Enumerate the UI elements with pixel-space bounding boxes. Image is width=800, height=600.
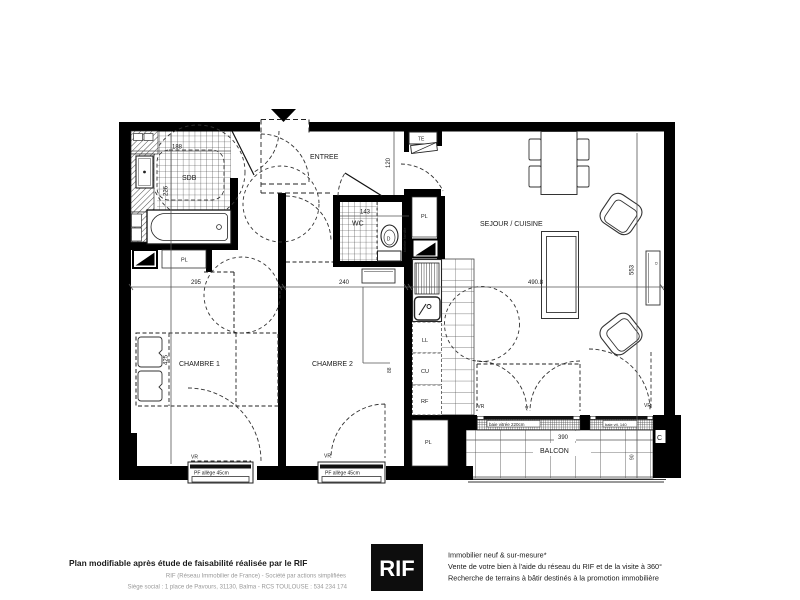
- svg-text:Vente de votre bien à l'aide d: Vente de votre bien à l'aide du réseau d…: [448, 562, 662, 571]
- svg-text:SDB: SDB: [182, 175, 197, 182]
- svg-text:LL: LL: [422, 338, 428, 344]
- svg-text:188: 188: [172, 145, 183, 151]
- svg-text:390: 390: [558, 435, 569, 441]
- svg-text:D: D: [654, 262, 659, 265]
- svg-text:490.8: 490.8: [528, 280, 544, 286]
- svg-text:D: D: [387, 237, 391, 243]
- svg-text:SEJOUR / CUISINE: SEJOUR / CUISINE: [480, 221, 543, 228]
- svg-text:VR: VR: [644, 403, 651, 409]
- svg-text:WC: WC: [352, 221, 364, 228]
- svg-text:RIF: RIF: [379, 556, 414, 581]
- svg-text:ENTREE: ENTREE: [310, 154, 339, 161]
- svg-text:PF allège 45cm: PF allège 45cm: [325, 471, 360, 477]
- svg-text:PL: PL: [425, 440, 432, 446]
- svg-text:Immobilier neuf & sur-mesure*: Immobilier neuf & sur-mesure*: [448, 551, 547, 560]
- svg-text:VR: VR: [324, 454, 331, 460]
- svg-text:CHAMBRE 2: CHAMBRE 2: [312, 361, 353, 368]
- svg-text:PL: PL: [181, 258, 188, 264]
- svg-text:RIF (Réseau Immobilier de Fran: RIF (Réseau Immobilier de France) - Soci…: [166, 574, 346, 580]
- svg-text:Recherche de terrains à bâtir: Recherche de terrains à bâtir destinés à…: [448, 574, 659, 583]
- svg-text:IVR: IVR: [476, 404, 485, 410]
- svg-text:88: 88: [387, 367, 393, 373]
- svg-text:143: 143: [360, 210, 371, 216]
- svg-text:TE: TE: [418, 137, 425, 143]
- svg-text:240: 240: [339, 280, 350, 286]
- svg-text:BALCON: BALCON: [540, 448, 569, 455]
- svg-text:90: 90: [630, 454, 636, 460]
- svg-text:RF: RF: [421, 399, 429, 405]
- svg-text:Plan modifiable après étude de: Plan modifiable après étude de faisabili…: [69, 558, 307, 568]
- svg-text:baie vitrée 220cm: baie vitrée 220cm: [489, 422, 525, 427]
- svg-text:295: 295: [191, 280, 202, 286]
- svg-text:toilette famille: toilette famille: [402, 227, 407, 252]
- svg-text:VR: VR: [191, 455, 198, 461]
- svg-text:425: 425: [164, 354, 170, 365]
- svg-text:120: 120: [386, 157, 392, 168]
- svg-text:Siège social : 1 place de Pavo: Siège social : 1 place de Pavours, 31130…: [128, 585, 348, 591]
- svg-text:CHAMBRE 1: CHAMBRE 1: [179, 361, 220, 368]
- svg-text:226: 226: [164, 185, 170, 196]
- svg-text:baie vit. 140: baie vit. 140: [605, 422, 627, 427]
- svg-text:PL: PL: [421, 214, 428, 220]
- svg-text:553: 553: [630, 264, 636, 275]
- svg-text:C: C: [657, 435, 662, 442]
- svg-text:PF allège 45cm: PF allège 45cm: [194, 471, 229, 477]
- svg-text:CU: CU: [421, 369, 429, 375]
